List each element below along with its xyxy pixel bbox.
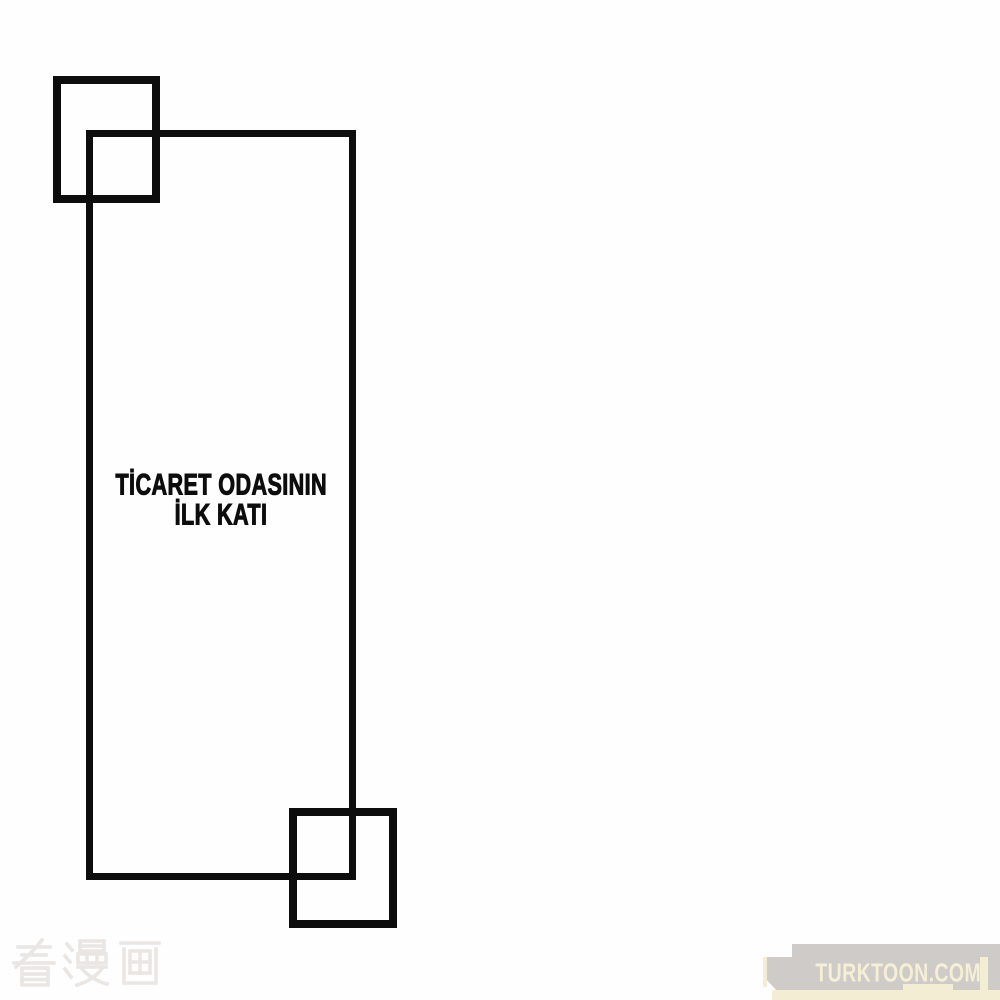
banner-right-tick [980, 957, 988, 996]
decor-square-top-left [53, 76, 160, 203]
panel-caption: TİCARET ODASININ İLK KATI [86, 470, 356, 530]
comic-page: TİCARET ODASININ İLK KATI [0, 0, 1000, 1000]
decor-square-bottom-right [289, 808, 397, 928]
banner-bottom-strip [772, 990, 1000, 1000]
banner-left-highlight [763, 957, 767, 987]
hanzi-man-glyph [65, 941, 107, 985]
hanzi-watermark-glyphs [12, 938, 164, 988]
cn-site-watermark [12, 938, 164, 988]
caption-line-2: İLK KATI [86, 500, 356, 530]
banner-left-notch [767, 957, 792, 991]
hanzi-hua-glyph [121, 943, 159, 983]
caption-line-1: TİCARET ODASININ [86, 470, 356, 500]
hanzi-kan-glyph [14, 940, 54, 985]
banner-site-name: TURKTOON.COM [792, 960, 968, 986]
